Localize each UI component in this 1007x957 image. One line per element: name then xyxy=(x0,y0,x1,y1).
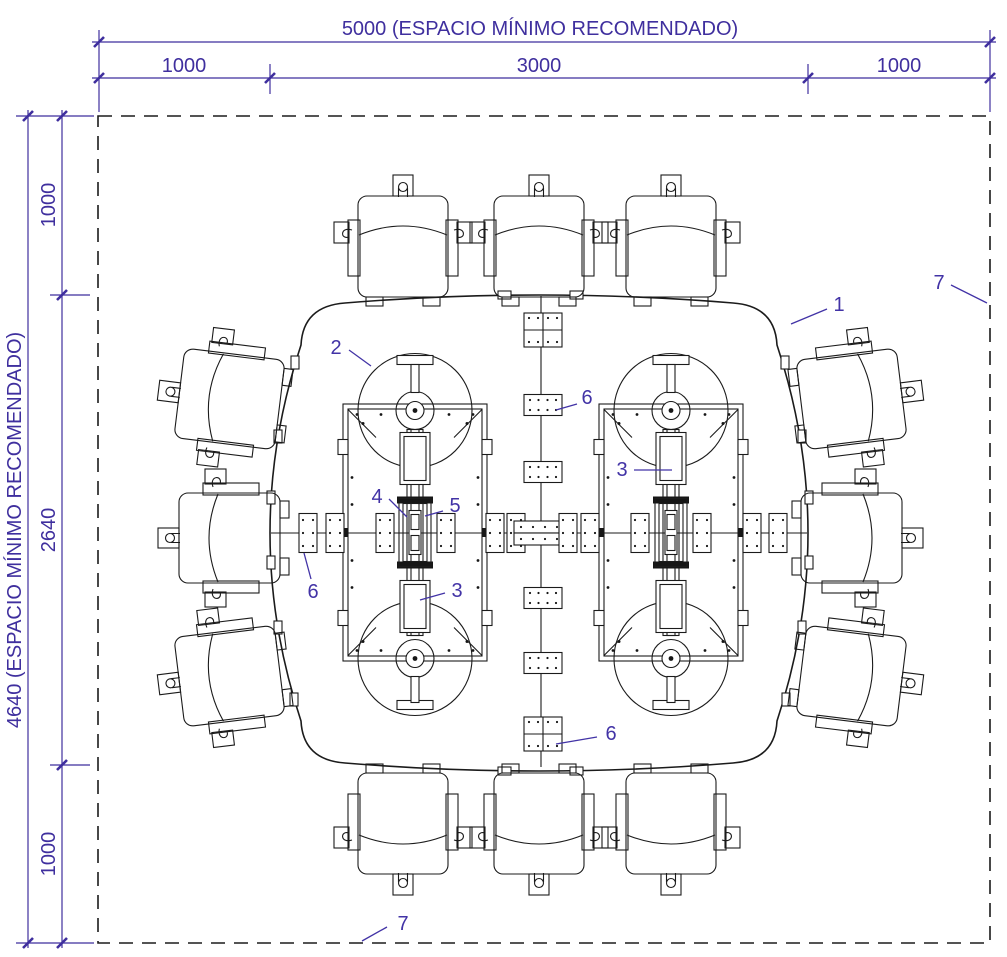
top-dimensions: 5000 (ESPACIO MÍNIMO RECOMENDADO) 1000 3… xyxy=(92,17,996,112)
chair-bottom-right xyxy=(602,764,740,895)
callout-label: 7 xyxy=(397,913,408,935)
connector-plate xyxy=(769,514,787,553)
callout-7-bottom: 7 xyxy=(362,913,409,941)
connector-plate xyxy=(559,514,577,553)
dim-label-overall-height: 4640 (ESPACIO MÍNIMO RECOMENDADO) xyxy=(3,332,26,728)
connector-plate xyxy=(524,313,562,347)
dim-label-segment: 2640 xyxy=(38,508,60,553)
callout-1: 1 xyxy=(791,294,845,324)
connector-plate xyxy=(581,514,599,553)
chair-right-middle xyxy=(792,469,923,607)
technical-drawing-page: 5000 (ESPACIO MÍNIMO RECOMENDADO) 1000 3… xyxy=(0,0,1007,957)
connector-plate xyxy=(524,395,562,416)
chair-bottom-center xyxy=(470,764,608,895)
callout-label: 6 xyxy=(581,387,592,409)
leader-line xyxy=(349,350,371,366)
dim-label-overall-width: 5000 (ESPACIO MÍNIMO RECOMENDADO) xyxy=(342,17,738,40)
leader-line xyxy=(304,553,311,579)
connector-plate xyxy=(524,653,562,674)
callout-label: 2 xyxy=(330,337,341,359)
connector-plates xyxy=(299,313,787,751)
connector-plate xyxy=(524,462,562,483)
callout-label: 1 xyxy=(833,294,844,316)
callout-label: 7 xyxy=(933,272,944,294)
dim-label-segment: 1000 xyxy=(162,55,207,77)
connector-plate xyxy=(524,717,562,751)
dim-label-segment: 1000 xyxy=(38,183,60,228)
table-module-right xyxy=(594,354,748,716)
dim-label-segment: 1000 xyxy=(38,832,60,877)
callout-label: 3 xyxy=(616,459,627,481)
callout-6-bottom: 6 xyxy=(556,723,617,745)
callout-label: 6 xyxy=(605,723,616,745)
connector-plate xyxy=(524,588,562,609)
table-module-left xyxy=(338,354,492,716)
connector-plate xyxy=(486,514,504,553)
connector-plate xyxy=(326,514,344,553)
connector-plate xyxy=(299,514,317,553)
connector-plate xyxy=(376,514,394,553)
left-dimensions: 4640 (ESPACIO MÍNIMO RECOMENDADO) 1000 2… xyxy=(3,110,94,948)
connector-plate xyxy=(743,514,761,553)
connector-plate xyxy=(437,514,455,553)
connector-plate xyxy=(693,514,711,553)
leader-line xyxy=(362,927,387,941)
dim-label-segment: 1000 xyxy=(877,55,922,77)
chair-right-top xyxy=(784,322,931,475)
callout-7-top: 7 xyxy=(933,272,987,303)
callout-label: 3 xyxy=(451,580,462,602)
chair-left-top xyxy=(150,322,297,475)
connector-plate xyxy=(631,514,649,553)
callout-6-left: 6 xyxy=(304,553,319,603)
callout-label: 4 xyxy=(371,486,382,508)
chair-top-center xyxy=(470,175,608,306)
leader-line xyxy=(791,309,827,324)
callout-label: 5 xyxy=(449,495,460,517)
chair-top-left xyxy=(334,175,472,306)
callout-label: 6 xyxy=(307,581,318,603)
chair-top-right xyxy=(602,175,740,306)
callout-2: 2 xyxy=(330,337,371,366)
dim-label-segment: 3000 xyxy=(517,55,562,77)
floor-plan-canvas: 5000 (ESPACIO MÍNIMO RECOMENDADO) 1000 3… xyxy=(0,0,1007,957)
leader-line xyxy=(951,285,987,303)
chair-bottom-left xyxy=(334,764,472,895)
